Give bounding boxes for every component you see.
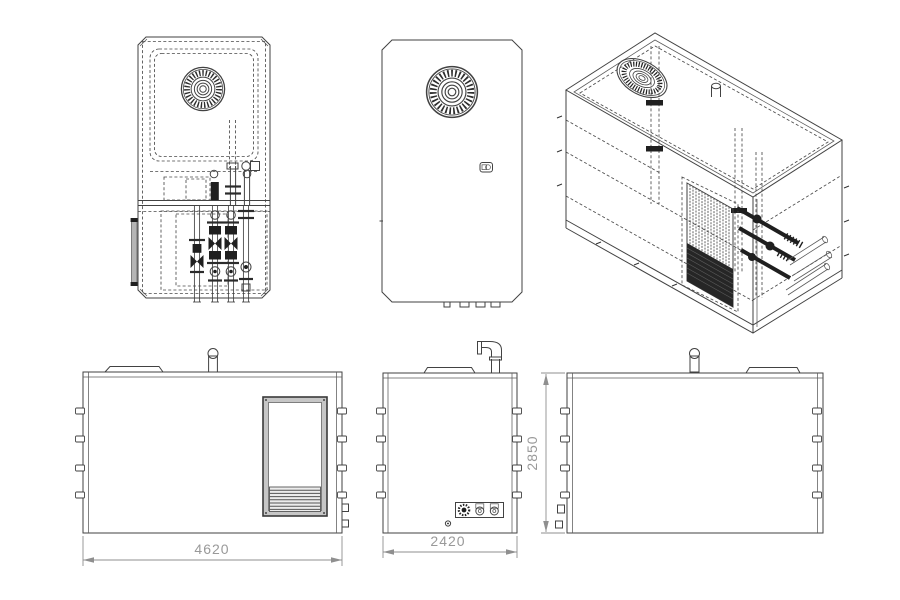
view-side-elevation-right: [556, 349, 824, 534]
roof-fitting: [242, 162, 250, 170]
view-end-elevation: 2420 2850: [377, 342, 566, 559]
component-block: [211, 182, 219, 200]
drawing-sheet: 4620: [0, 0, 900, 600]
end-outline: [383, 373, 517, 533]
valve-assembly: [223, 211, 239, 281]
view-side-elevation-left: 4620: [76, 349, 349, 567]
iso-top-face: [566, 33, 842, 197]
dim-length-label: 4620: [194, 541, 229, 557]
view-top-detailed: [131, 37, 270, 302]
view-top-panel: [380, 40, 523, 307]
roof-hatch: [105, 367, 163, 373]
dim-length: 4620: [83, 536, 342, 566]
bottom-tabs: [444, 302, 500, 307]
technical-drawing-canvas: 4620: [0, 0, 900, 600]
fan-icon: [427, 67, 478, 118]
roof-pipe: [690, 349, 700, 373]
roof-hatch: [746, 368, 800, 374]
hinge-bar: [132, 221, 138, 283]
flue-elbow: [478, 342, 502, 374]
piping-bay: [138, 206, 270, 302]
dim-depth-label: 2420: [430, 533, 465, 549]
side-tabs: [561, 408, 822, 498]
roof-pipe: [208, 349, 218, 373]
valve-manifold: [737, 208, 833, 295]
panel-outline: [382, 40, 522, 302]
access-door: [263, 397, 327, 516]
door-louver: [270, 487, 321, 512]
service-connections: [456, 503, 504, 518]
dim-height: 2850: [524, 373, 565, 533]
view-isometric: [557, 33, 849, 333]
roof-stub-pipe: [712, 83, 721, 97]
side-tabs: [377, 408, 522, 498]
dim-depth: 2420: [383, 533, 517, 558]
valve-assembly: [207, 211, 223, 281]
roof-hatch: [424, 368, 475, 374]
latch-handle: [480, 163, 493, 173]
condenser-panel: [682, 177, 738, 312]
dim-height-label: 2850: [524, 435, 540, 470]
fan-icon: [181, 67, 224, 110]
side-outline: [567, 373, 823, 533]
fan-icon: [610, 50, 673, 105]
